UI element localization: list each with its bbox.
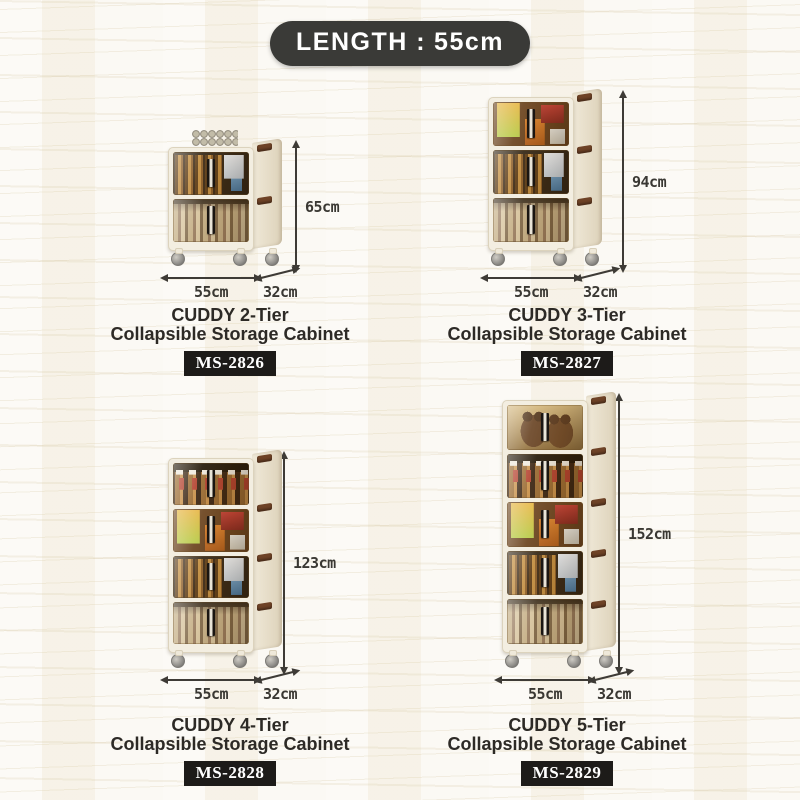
product-title: CUDDY 3-Tier: [417, 306, 717, 325]
side-segment: [252, 138, 282, 196]
door-handle-icon: [207, 206, 215, 234]
product-caption: CUDDY 2-Tier Collapsible Storage Cabinet…: [80, 306, 380, 390]
product-card-2-tier: 65cm 55cm 32cm CUDDY 2-Tier Collapsible …: [90, 80, 370, 390]
depth-value: 32cm: [256, 283, 304, 301]
latch-icon: [257, 602, 272, 611]
latch-icon: [257, 196, 272, 205]
latch-icon: [591, 498, 606, 507]
depth-value: 32cm: [256, 685, 304, 703]
length-banner: LENGTH :55cm: [270, 21, 530, 66]
product-caption: CUDDY 5-Tier Collapsible Storage Cabinet…: [417, 716, 717, 800]
cabinet-tier: [173, 152, 249, 195]
cabinet-side-panel: [252, 449, 282, 651]
side-segment: [586, 493, 616, 549]
cabinet-tier: [173, 556, 249, 598]
cabinet-tier: [173, 509, 249, 551]
cabinet-tier: [507, 502, 583, 547]
depth-value: 32cm: [590, 685, 638, 703]
latch-icon: [257, 552, 272, 561]
cabinet-front: [488, 97, 574, 251]
door-handle-icon: [527, 205, 535, 233]
product-subtitle: Collapsible Storage Cabinet: [417, 735, 717, 754]
caster-wheel: [265, 252, 279, 266]
door-handle-icon: [541, 607, 549, 636]
product-subtitle: Collapsible Storage Cabinet: [80, 735, 380, 754]
side-segment: [572, 192, 602, 249]
width-value: 55cm: [168, 685, 254, 703]
caster-wheel: [491, 252, 505, 266]
height-value: 152cm: [628, 525, 671, 543]
side-segment: [252, 449, 282, 503]
height-arrow-icon: [622, 97, 624, 266]
side-segment: [252, 597, 282, 651]
product-title: CUDDY 4-Tier: [80, 716, 380, 735]
width-value: 55cm: [502, 685, 588, 703]
depth-arrow-icon: [260, 269, 293, 279]
depth-value: 32cm: [576, 283, 624, 301]
product-title: CUDDY 5-Tier: [417, 716, 717, 735]
side-segment: [586, 595, 616, 651]
cabinet-front: [168, 147, 254, 251]
cabinet-tier: [173, 602, 249, 644]
side-segment: [572, 88, 602, 145]
caster-wheel: [585, 252, 599, 266]
width-value: 55cm: [488, 283, 574, 301]
latch-icon: [577, 197, 592, 206]
product-size-infographic: LENGTH :55cm 65cm 55cm 32cm CUDDY 2-Tier…: [0, 0, 800, 800]
height-arrow-icon: [283, 458, 285, 668]
caster-wheel: [233, 654, 247, 668]
product-caption: CUDDY 4-Tier Collapsible Storage Cabinet…: [80, 716, 380, 800]
cabinet-tier: [507, 599, 583, 644]
product-subtitle: Collapsible Storage Cabinet: [417, 325, 717, 344]
height-arrow-icon: [618, 400, 620, 668]
door-handle-icon: [207, 609, 215, 636]
cabinet-tier: [493, 198, 569, 242]
product-caption: CUDDY 3-Tier Collapsible Storage Cabinet…: [417, 306, 717, 390]
door-handle-icon: [207, 516, 215, 543]
side-segment: [586, 442, 616, 498]
door-handle-icon: [527, 109, 535, 137]
latch-icon: [591, 396, 606, 405]
width-arrow-icon: [487, 277, 575, 279]
height-value: 65cm: [305, 198, 339, 216]
door-handle-icon: [207, 470, 215, 497]
product-card-5-tier: 152cm 55cm 32cm CUDDY 5-Tier Collapsible…: [427, 390, 707, 800]
model-badge: MS-2829: [521, 761, 614, 786]
door-handle-icon: [207, 563, 215, 590]
model-badge: MS-2828: [184, 761, 277, 786]
cabinet-tier: [173, 463, 249, 505]
latch-icon: [591, 447, 606, 456]
product-card-3-tier: 94cm 55cm 32cm CUDDY 3-Tier Collapsible …: [427, 80, 707, 390]
latch-icon: [577, 93, 592, 102]
door-handle-icon: [527, 157, 535, 185]
latch-icon: [591, 549, 606, 558]
length-banner-label: LENGTH :: [296, 28, 426, 56]
side-segment: [252, 191, 282, 249]
depth-arrow-icon: [594, 671, 627, 681]
caster-wheel: [567, 654, 581, 668]
product-title: CUDDY 2-Tier: [80, 306, 380, 325]
caster-wheel: [265, 654, 279, 668]
product-subtitle: Collapsible Storage Cabinet: [80, 325, 380, 344]
width-arrow-icon: [167, 679, 255, 681]
door-handle-icon: [541, 510, 549, 539]
height-value: 123cm: [293, 554, 336, 572]
height-value: 94cm: [632, 173, 666, 191]
cabinet-side-panel: [252, 138, 282, 249]
product-card-4-tier: 123cm 55cm 32cm CUDDY 4-Tier Collapsible…: [90, 390, 370, 800]
cabinet-tier: [507, 454, 583, 499]
side-segment: [586, 391, 616, 447]
side-segment: [252, 548, 282, 602]
cabinet-tier: [493, 150, 569, 194]
latch-icon: [257, 503, 272, 512]
door-handle-icon: [541, 461, 549, 490]
cabinet-tier: [507, 551, 583, 596]
door-handle-icon: [207, 159, 215, 187]
cabinet-tier: [507, 405, 583, 450]
caster-wheel: [505, 654, 519, 668]
caster-wheel: [233, 252, 247, 266]
latch-icon: [257, 454, 272, 463]
stacked-cans-decor: [192, 130, 238, 146]
width-arrow-icon: [167, 277, 255, 279]
cabinet-side-panel: [572, 88, 602, 249]
latch-icon: [577, 145, 592, 154]
latch-icon: [591, 600, 606, 609]
height-arrow-icon: [295, 147, 297, 266]
caster-wheel: [171, 654, 185, 668]
caster-wheel: [171, 252, 185, 266]
side-segment: [252, 498, 282, 552]
cabinet-front: [502, 400, 588, 653]
latch-icon: [257, 143, 272, 152]
door-handle-icon: [541, 558, 549, 587]
caster-wheel: [553, 252, 567, 266]
cabinet-tier: [493, 102, 569, 146]
side-segment: [586, 544, 616, 600]
cabinet-side-panel: [586, 391, 616, 651]
cabinet-front: [168, 458, 254, 653]
model-badge: MS-2826: [184, 351, 277, 376]
model-badge: MS-2827: [521, 351, 614, 376]
width-value: 55cm: [168, 283, 254, 301]
depth-arrow-icon: [580, 269, 613, 279]
cabinet-tier: [173, 199, 249, 242]
depth-arrow-icon: [260, 671, 293, 681]
width-arrow-icon: [501, 679, 589, 681]
caster-wheel: [599, 654, 613, 668]
length-banner-value: 55cm: [434, 28, 504, 56]
side-segment: [572, 140, 602, 197]
door-handle-icon: [541, 413, 549, 442]
